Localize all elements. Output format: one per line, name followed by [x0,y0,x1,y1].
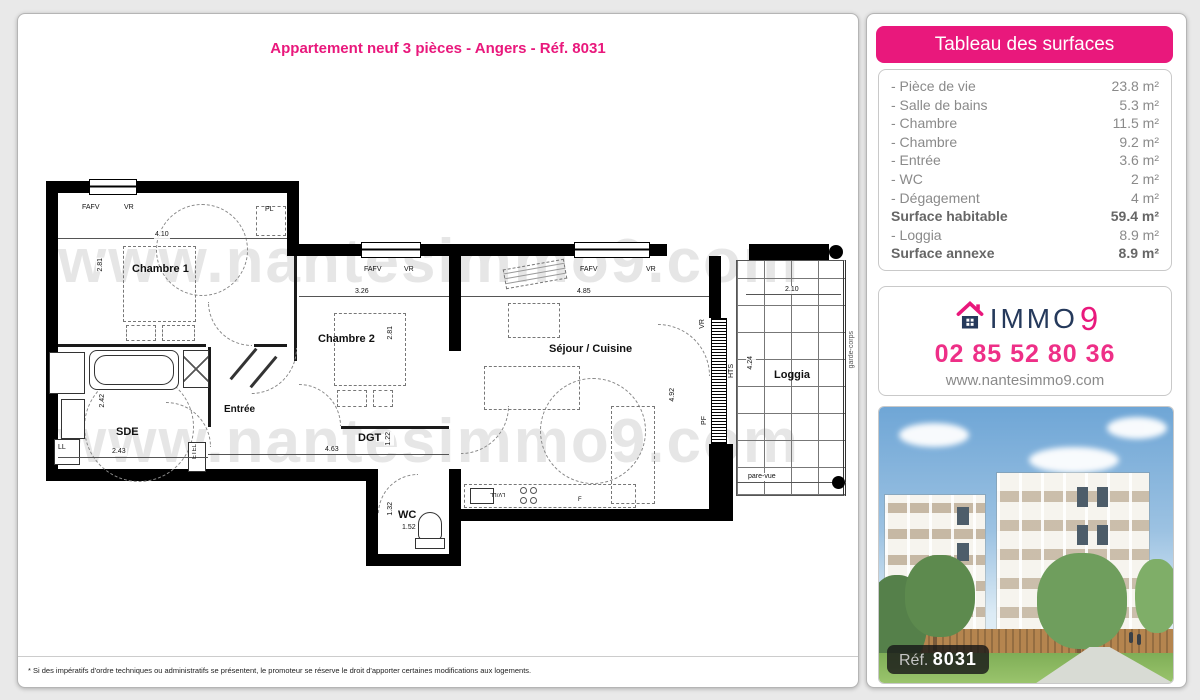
wall-wc-bottom [366,554,461,566]
surface-value: 5.3 m² [1119,96,1159,115]
room-label-entree: Entrée [224,404,255,415]
cloud [1029,447,1119,473]
shower [183,350,209,388]
wall-wc-right [449,469,461,566]
wall-right-lower [709,444,733,521]
table-row: - Pièce de vie23.8 m² [891,77,1159,96]
surface-value: 23.8 m² [1112,77,1159,96]
etel-label: ETEL [191,444,199,459]
toilet-tank [415,538,445,549]
surface-value: 8.9 m² [1119,226,1159,245]
person [1129,632,1133,643]
dim-sejour-width: 4.85 [576,288,592,296]
door-arc-entree [251,348,297,394]
wall-right-upper [709,256,721,318]
wall-chambre2-west [294,256,297,361]
hob-burner [530,487,537,494]
cloud [1107,417,1167,439]
fafv-label: FAFV [364,266,382,274]
wall-left [46,181,58,481]
wall-top-chambre1 [46,181,299,193]
room-label-sde: SDE [116,426,139,438]
immo9-logo: IMMO9 [879,299,1171,338]
building-photo[interactable]: Réf. 8031 [878,406,1174,684]
table-row-total: Surface annexe8.9 m² [891,244,1159,263]
surface-value: 59.4 m² [1111,207,1159,226]
brand-immo: IMMO [990,303,1078,335]
washing-machine [54,439,80,465]
room-label-sejour: Séjour / Cuisine [549,343,632,355]
dim-sejour-height: 4.92 [668,388,678,402]
tree [905,555,975,637]
tree [1037,553,1127,649]
info-panel: Tableau des surfaces - Pièce de vie23.8 … [866,13,1187,688]
door-arc-loggia [658,324,710,376]
table-row: - Entrée3.6 m² [891,151,1159,170]
table-row: - Loggia8.9 m² [891,226,1159,245]
dim-line [299,296,449,297]
ref-label: Réf. [899,652,928,669]
nightstand [337,390,367,407]
pf-label: PF [701,416,709,425]
window-chambre2 [361,242,421,258]
dim-line [461,296,709,297]
surfaces-header: Tableau des surfaces [876,26,1173,63]
room-label-chambre2: Chambre 2 [318,333,375,345]
footnote: * Si des impératifs d'ordre techniques o… [18,656,858,684]
floorplan-panel: Appartement neuf 3 pièces - Angers - Réf… [17,13,859,688]
loggia-post-top [829,245,843,259]
surface-label: - Entrée [891,151,941,170]
dim-dgt-height: 1.22 [384,432,394,446]
window-sejour [574,242,650,258]
hob-burner [520,487,527,494]
surfaces-table: - Pièce de vie23.8 m² - Salle de bains5.… [878,69,1172,271]
dim-chambre2-width: 3.26 [354,288,370,296]
dim-line [58,238,287,239]
room-label-loggia: Loggia [774,369,810,381]
door-arc-chambre1 [208,302,252,346]
surface-value: 9.2 m² [1119,133,1159,152]
hts-label: HTS [728,364,736,378]
table-row: - WC2 m² [891,170,1159,189]
surface-value: 3.6 m² [1119,151,1159,170]
dim-line [746,294,841,295]
dim-line [208,454,449,455]
hob-burner [530,497,537,504]
surface-label: - Chambre [891,133,957,152]
sofa [484,366,580,410]
dim-wc-width: 1.52 [401,524,417,532]
hob-burner [520,497,527,504]
table-row: - Chambre9.2 m² [891,133,1159,152]
reference-badge: Réf. 8031 [887,645,989,674]
surface-label: - Dégagement [891,189,980,208]
table-row: - Dégagement4 m² [891,189,1159,208]
surface-value: 8.9 m² [1119,244,1159,263]
dim-wc-height: 1.32 [386,502,396,516]
door-arc-sejour [461,406,509,454]
door-arc-chambre2 [299,384,341,426]
vr-label: VR [646,266,656,274]
bathtub [89,350,179,390]
vr-label: VR [404,266,414,274]
wall-top-loggia [749,244,829,260]
lvll-label: LV/LL [490,490,505,498]
pare-vue-label: pare-vue [746,473,778,481]
radiator [503,259,568,289]
dim-sde-height: 2.42 [98,394,108,408]
surface-label: - Chambre [891,114,957,133]
dim-chambre1-height: 2.81 [96,258,106,272]
nightstand [162,325,195,341]
dim-dgt-width: 4.63 [324,446,340,454]
page: Appartement neuf 3 pièces - Angers - Réf… [0,0,1200,700]
bed-chambre2 [334,313,406,386]
surface-value: 11.5 m² [1113,114,1159,133]
pare-vue-line [736,482,846,483]
door-arc-wc [378,474,418,514]
phone-number[interactable]: 02 85 52 80 36 [879,340,1171,369]
surface-label: Surface annexe [891,244,995,263]
dim-sde-width: 2.43 [111,448,127,456]
table [508,303,560,338]
surface-label: - Loggia [891,226,942,245]
wall-wc-left [366,469,378,566]
vr-side-label: VR [699,319,707,329]
room-label-wc: WC [398,509,416,521]
website-link[interactable]: www.nantesimmo9.com [879,372,1171,389]
dim-line [58,457,208,458]
window-chambre1 [89,179,137,195]
sde-cabinet [49,352,85,394]
dim-chambre2-height: 2.81 [386,326,396,340]
dim-chambre1-width: 4.10 [154,231,170,239]
table-row: - Chambre11.5 m² [891,114,1159,133]
wall-sde-north-b [254,344,287,347]
window-hts-strip [711,318,727,444]
brand-9: 9 [1080,300,1098,338]
dim-loggia-width: 2.10 [784,286,800,294]
bed-chambre1 [123,246,196,322]
ref-number: 8031 [933,649,977,669]
washbasin [61,399,85,439]
ll-label: LL [58,444,66,452]
room-label-chambre1: Chambre 1 [132,263,189,275]
cloud [899,423,969,447]
table-row: - Salle de bains5.3 m² [891,96,1159,115]
surface-label: - Pièce de vie [891,77,976,96]
dim-loggia-height: 4.24 [746,356,756,370]
nightstand [373,390,393,407]
nightstand [126,325,156,341]
loggia-post-bottom [832,476,845,489]
person [1137,634,1141,645]
surface-value: 4 m² [1131,189,1159,208]
wall-bottom-sejour [461,509,721,521]
surface-value: 2 m² [1131,170,1159,189]
garde-corps-label: garde-corps [848,331,856,368]
page-title: Appartement neuf 3 pièces - Angers - Réf… [18,40,858,57]
room-label-dgt: DGT [358,432,381,444]
surface-label: Surface habitable [891,207,1008,226]
fafv-label: FAFV [82,204,100,212]
pl-label: PL [265,206,274,214]
tree [1135,559,1174,633]
house-icon [952,299,988,338]
surface-label: - WC [891,170,923,189]
fafv-label: FAFV [580,266,598,274]
vr-label: VR [124,204,134,212]
fridge-label: F [578,496,582,504]
wall-bottom-left [46,469,378,481]
wall-chambre2-south [341,426,449,429]
toilet-bowl [418,512,442,540]
table-row-total: Surface habitable59.4 m² [891,207,1159,226]
contact-card: IMMO9 02 85 52 80 36 www.nantesimmo9.com [878,286,1172,396]
floor-plan: 4.10 2.81 3.26 2.81 4.85 4.92 2.43 2.42 … [46,176,859,576]
wall-sejour-west [449,256,461,351]
surface-label: - Salle de bains [891,96,988,115]
wall-sde-north-a [58,344,206,347]
